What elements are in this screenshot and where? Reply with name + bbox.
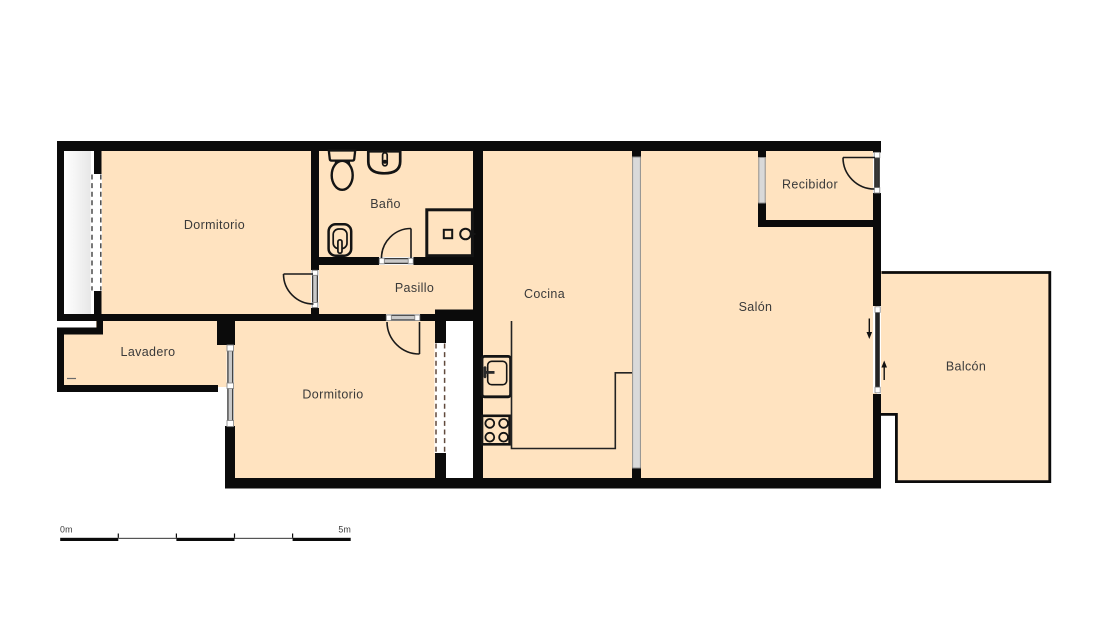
svg-text:Balcón: Balcón — [946, 360, 986, 374]
svg-text:0m: 0m — [60, 525, 73, 535]
svg-text:Cocina: Cocina — [524, 287, 565, 301]
svg-text:Recibidor: Recibidor — [782, 178, 838, 192]
svg-text:Baño: Baño — [370, 197, 401, 211]
svg-text:Pasillo: Pasillo — [395, 281, 434, 295]
svg-text:5m: 5m — [338, 525, 351, 535]
svg-text:Lavadero: Lavadero — [121, 345, 176, 359]
svg-text:Dormitorio: Dormitorio — [302, 388, 363, 402]
svg-text:Salón: Salón — [739, 300, 773, 314]
svg-text:Dormitorio: Dormitorio — [184, 218, 245, 232]
